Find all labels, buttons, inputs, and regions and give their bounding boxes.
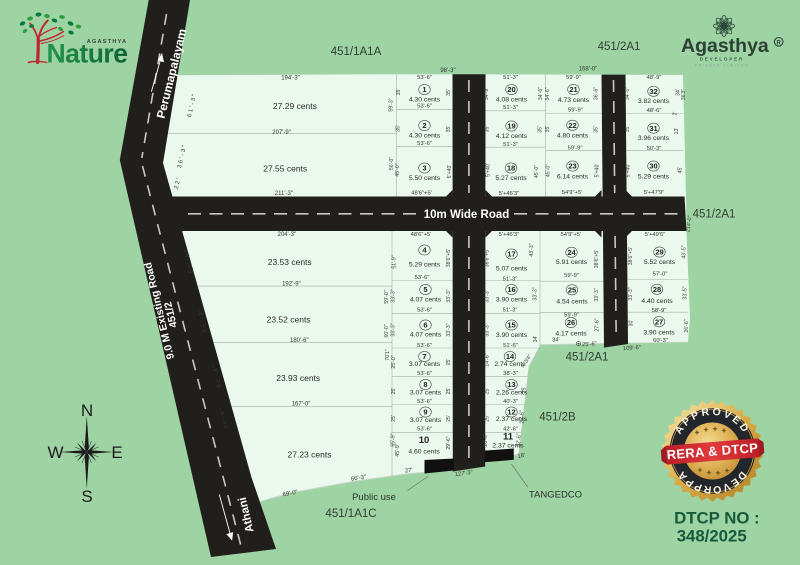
svg-text:53'-6": 53'-6" [415, 275, 430, 281]
svg-text:31: 31 [649, 124, 657, 133]
svg-text:45'-9": 45'-9" [395, 443, 401, 456]
svg-text:35': 35' [446, 89, 452, 96]
svg-text:23.52 cents: 23.52 cents [267, 315, 311, 325]
svg-text:109'-6": 109'-6" [623, 345, 641, 352]
svg-text:34'-6": 34'-6" [545, 87, 551, 100]
svg-text:2': 2' [673, 112, 679, 116]
svg-text:51'-3": 51'-3" [503, 75, 518, 81]
svg-text:4.60 cents: 4.60 cents [408, 449, 440, 456]
svg-text:451/1A1C: 451/1A1C [325, 508, 376, 520]
svg-text:34'-6": 34'-6" [538, 87, 544, 100]
svg-text:25': 25' [484, 415, 490, 422]
svg-text:38'6"+5': 38'6"+5' [628, 247, 634, 265]
svg-text:35': 35' [446, 126, 452, 133]
svg-text:25': 25' [446, 359, 452, 366]
svg-text:4.30 cents: 4.30 cents [409, 133, 441, 140]
svg-text:59'-0": 59'-0" [384, 290, 390, 303]
svg-text:DTCP NO :: DTCP NO : [674, 508, 759, 527]
svg-text:53'-6": 53'-6" [417, 141, 432, 147]
svg-text:30': 30' [629, 320, 635, 327]
svg-text:4.40 cents: 4.40 cents [641, 298, 673, 305]
svg-text:180'-6": 180'-6" [290, 338, 309, 344]
svg-text:4.80 cents: 4.80 cents [557, 133, 589, 140]
svg-text:25': 25' [484, 388, 490, 395]
svg-text:13': 13' [674, 128, 680, 135]
svg-text:34'-9": 34'-9" [484, 87, 490, 100]
svg-text:8: 8 [423, 380, 427, 389]
svg-text:33'-3": 33'-3" [484, 289, 490, 302]
svg-text:16: 16 [507, 285, 515, 294]
svg-text:5.27 cents: 5.27 cents [495, 175, 527, 182]
svg-text:25'-6": 25'-6" [582, 341, 597, 348]
svg-text:59'-9": 59'-9" [568, 108, 583, 114]
svg-text:40'-3": 40'-3" [503, 399, 518, 405]
svg-text:58'-9": 58'-9" [652, 308, 667, 314]
svg-text:25': 25' [446, 415, 452, 422]
svg-text:51'-6": 51'-6" [503, 343, 518, 349]
svg-text:48'6"+5': 48'6"+5' [411, 232, 432, 238]
svg-text:3.07 cents: 3.07 cents [410, 417, 442, 424]
svg-text:33'-3": 33'-3" [446, 289, 452, 302]
svg-text:25': 25' [391, 415, 397, 422]
svg-text:53'-6": 53'-6" [417, 343, 432, 349]
svg-text:14'-6": 14'-6" [484, 353, 490, 366]
svg-text:53'-6": 53'-6" [417, 75, 432, 81]
svg-text:45'-0": 45'-0" [534, 165, 540, 178]
svg-text:5'+40': 5'+40' [447, 165, 453, 179]
svg-text:59'-9": 59'-9" [568, 145, 583, 151]
svg-text:59'-3": 59'-3" [389, 98, 395, 111]
svg-text:5.29 cents: 5.29 cents [409, 262, 441, 269]
svg-text:51'-3": 51'-3" [503, 105, 518, 111]
svg-text:Nature: Nature [47, 39, 128, 69]
svg-text:27'-6": 27'-6" [517, 433, 523, 446]
svg-text:23.93 cents: 23.93 cents [276, 373, 320, 383]
svg-text:25': 25' [391, 388, 397, 395]
svg-text:3.82 cents: 3.82 cents [638, 98, 670, 105]
svg-text:4.07 cents: 4.07 cents [410, 297, 442, 304]
svg-text:27: 27 [655, 317, 663, 326]
svg-text:5'+47'9": 5'+47'9" [644, 190, 665, 196]
svg-text:48'-9": 48'-9" [647, 75, 662, 81]
svg-text:25'-0": 25'-0" [391, 355, 397, 368]
svg-text:25'-6": 25'-6" [520, 410, 526, 423]
svg-text:33'-3": 33'-3" [594, 288, 600, 301]
svg-text:10: 10 [419, 435, 430, 446]
svg-text:3.90 cents: 3.90 cents [496, 332, 528, 339]
svg-text:53'-6": 53'-6" [417, 399, 432, 405]
svg-text:27.23 cents: 27.23 cents [288, 449, 332, 459]
svg-text:51'-3": 51'-3" [503, 142, 518, 148]
svg-text:35': 35' [594, 126, 600, 133]
svg-text:34': 34' [552, 337, 560, 344]
svg-text:4.08 cents: 4.08 cents [496, 97, 528, 104]
svg-text:451/2A1: 451/2A1 [598, 41, 641, 53]
svg-text:9: 9 [423, 408, 427, 417]
svg-text:38'6"+5': 38'6"+5' [484, 249, 490, 267]
svg-text:5'+46'3": 5'+46'3" [499, 232, 520, 238]
svg-text:6: 6 [423, 321, 427, 330]
svg-text:TANGEDCO: TANGEDCO [529, 490, 582, 501]
svg-text:S: S [81, 487, 92, 506]
svg-text:5.50 cents: 5.50 cents [409, 175, 441, 182]
svg-text:59'-9": 59'-9" [566, 75, 581, 81]
svg-text:4.07 cents: 4.07 cents [410, 331, 442, 338]
svg-text:35': 35' [545, 126, 551, 133]
svg-text:5'+40': 5'+40' [595, 164, 601, 178]
svg-text:51'-9": 51'-9" [392, 255, 398, 268]
svg-text:3.96 cents: 3.96 cents [638, 135, 670, 142]
svg-text:18': 18' [517, 453, 525, 460]
svg-text:5: 5 [423, 285, 427, 294]
svg-text:34': 34' [533, 336, 539, 343]
svg-text:98'-3": 98'-3" [440, 68, 455, 74]
svg-text:E: E [111, 443, 122, 462]
svg-text:60'-3": 60'-3" [653, 338, 668, 344]
svg-text:70'1": 70'1" [385, 349, 391, 361]
svg-text:4.12 cents: 4.12 cents [496, 133, 528, 140]
svg-text:27.55 cents: 27.55 cents [263, 164, 307, 174]
svg-text:27': 27' [405, 468, 413, 475]
svg-text:33'-3": 33'-3" [628, 287, 634, 300]
svg-text:35': 35' [625, 126, 631, 133]
svg-text:33'-3": 33'-3" [391, 323, 397, 336]
svg-text:36'-6": 36'-6" [594, 87, 600, 100]
svg-text:5'+40': 5'+40' [486, 163, 492, 177]
svg-text:4.30 cents: 4.30 cents [409, 97, 441, 104]
svg-text:W: W [47, 443, 63, 462]
svg-text:15: 15 [507, 321, 515, 330]
svg-text:PRIVATE LIMITED: PRIVATE LIMITED [695, 62, 750, 67]
svg-text:3.07 cents: 3.07 cents [410, 390, 442, 397]
svg-text:N: N [81, 401, 93, 420]
svg-text:23: 23 [568, 162, 576, 171]
svg-text:O: O [712, 483, 722, 496]
svg-text:194'-3": 194'-3" [281, 76, 300, 82]
svg-text:R: R [776, 40, 781, 47]
svg-text:54'9"+5': 54'9"+5' [562, 190, 583, 196]
svg-text:33'-3": 33'-3" [484, 323, 490, 336]
svg-text:167'-0": 167'-0" [292, 402, 311, 408]
svg-text:451/2A1: 451/2A1 [693, 209, 736, 221]
svg-text:25: 25 [568, 286, 576, 295]
svg-text:26: 26 [567, 318, 575, 327]
svg-text:13: 13 [507, 380, 515, 389]
svg-text:17: 17 [507, 250, 515, 259]
svg-text:5'+40': 5'+40' [626, 164, 632, 178]
svg-text:45': 45' [678, 167, 684, 174]
svg-text:5.52 cents: 5.52 cents [644, 259, 676, 266]
svg-text:27'-6": 27'-6" [595, 318, 601, 331]
svg-text:25': 25' [522, 387, 528, 394]
svg-text:3.90 cents: 3.90 cents [643, 329, 675, 336]
svg-text:4.73 cents: 4.73 cents [558, 97, 590, 104]
svg-text:28: 28 [653, 285, 661, 294]
svg-text:Agasthya: Agasthya [681, 35, 769, 57]
svg-text:60'-0": 60'-0" [384, 324, 390, 337]
svg-text:451/2B: 451/2B [539, 412, 576, 424]
svg-text:20'-6": 20'-6" [483, 433, 489, 446]
svg-text:20: 20 [507, 85, 515, 94]
svg-text:59'-9": 59'-9" [564, 273, 579, 279]
svg-text:33'-5": 33'-5" [683, 286, 689, 299]
svg-text:2: 2 [422, 121, 426, 130]
svg-text:451/2A1: 451/2A1 [566, 352, 609, 364]
svg-text:1: 1 [422, 85, 426, 94]
svg-text:48'6"+5': 48'6"+5' [411, 191, 432, 197]
svg-text:33'-3": 33'-3" [533, 287, 539, 300]
svg-text:5'+46'3": 5'+46'3" [499, 191, 520, 197]
svg-text:11: 11 [503, 432, 514, 443]
svg-text:19: 19 [507, 122, 515, 131]
svg-text:Public use: Public use [352, 492, 396, 503]
svg-text:26'-6": 26'-6" [684, 319, 690, 332]
svg-text:48'-6": 48'-6" [647, 108, 662, 114]
svg-text:33'-3": 33'-3" [446, 323, 452, 336]
svg-text:211'-3": 211'-3" [275, 191, 293, 197]
svg-text:4.17 cents: 4.17 cents [555, 330, 587, 337]
svg-text:5.07 cents: 5.07 cents [496, 266, 528, 273]
svg-text:32: 32 [649, 87, 657, 96]
svg-text:5.91 cents: 5.91 cents [556, 259, 588, 266]
svg-text:3.07 cents: 3.07 cents [409, 361, 441, 368]
svg-text:21: 21 [569, 85, 577, 94]
svg-text:27.29 cents: 27.29 cents [273, 101, 317, 111]
svg-text:50'-3": 50'-3" [647, 146, 662, 152]
svg-text:204'-3": 204'-3" [277, 232, 296, 238]
svg-text:29'-6": 29'-6" [446, 436, 452, 449]
svg-text:45'-0": 45'-0" [395, 163, 401, 176]
svg-text:451/1A1A: 451/1A1A [331, 46, 382, 58]
svg-text:34'-5": 34'-5" [625, 87, 631, 100]
svg-text:25': 25' [446, 388, 452, 395]
svg-text:DEVELOPER: DEVELOPER [700, 56, 745, 61]
svg-text:36'3": 36'3" [681, 89, 687, 101]
svg-text:7: 7 [422, 352, 426, 361]
svg-text:43'-5": 43'-5" [682, 245, 688, 258]
svg-text:45'-0": 45'-0" [546, 164, 552, 177]
svg-text:35': 35' [396, 89, 402, 96]
svg-text:35': 35' [396, 125, 402, 132]
svg-text:57'-0": 57'-0" [653, 271, 668, 277]
svg-text:5.29 cents: 5.29 cents [638, 173, 670, 180]
svg-text:5'+49'6": 5'+49'6" [645, 232, 666, 238]
svg-text:24: 24 [567, 248, 576, 257]
svg-text:3.90 cents: 3.90 cents [496, 297, 528, 304]
svg-text:38'-3": 38'-3" [503, 371, 518, 377]
svg-text:53'-6": 53'-6" [417, 104, 432, 110]
svg-text:22: 22 [568, 121, 576, 130]
svg-text:38'6"+5': 38'6"+5' [446, 249, 452, 267]
svg-text:38'6"+5': 38'6"+5' [594, 250, 600, 268]
svg-text:3: 3 [422, 164, 426, 173]
svg-text:348/2025: 348/2025 [677, 527, 747, 546]
svg-text:4.54 cents: 4.54 cents [556, 298, 588, 305]
svg-text:53'-6": 53'-6" [417, 371, 432, 377]
svg-text:53'-6": 53'-6" [417, 427, 432, 433]
svg-text:51'-3": 51'-3" [503, 308, 518, 314]
svg-text:30: 30 [649, 162, 657, 171]
svg-text:33'-3": 33'-3" [391, 289, 397, 302]
svg-text:54'9"+5': 54'9"+5' [561, 232, 582, 238]
svg-text:168'-0": 168'-0" [579, 67, 598, 73]
svg-text:29: 29 [655, 248, 663, 257]
svg-text:192'-9": 192'-9" [282, 282, 301, 288]
svg-text:18: 18 [507, 164, 515, 173]
svg-text:53'-6": 53'-6" [417, 308, 432, 314]
svg-text:51'-3": 51'-3" [503, 277, 518, 283]
svg-text:14: 14 [506, 352, 515, 361]
svg-text:35': 35' [485, 126, 491, 133]
svg-text:23.53 cents: 23.53 cents [268, 257, 312, 267]
svg-text:6.14 cents: 6.14 cents [557, 173, 589, 180]
svg-text:10m Wide Road: 10m Wide Road [424, 209, 510, 221]
svg-text:207'-9": 207'-9" [272, 130, 291, 136]
svg-text:43'-3": 43'-3" [529, 243, 535, 256]
svg-text:35': 35' [538, 126, 544, 133]
